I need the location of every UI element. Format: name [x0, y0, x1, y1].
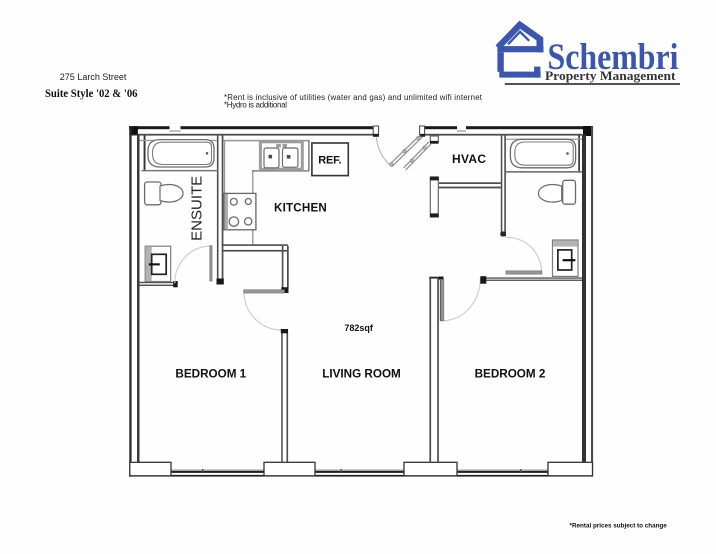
svg-text:*Hydro is additional: *Hydro is additional — [224, 101, 287, 110]
svg-text:BEDROOM 2: BEDROOM 2 — [475, 367, 546, 380]
svg-text:BEDROOM 1: BEDROOM 1 — [175, 367, 246, 380]
svg-text:275 Larch Street: 275 Larch Street — [60, 72, 127, 82]
svg-text:Property Management: Property Management — [545, 69, 676, 83]
svg-text:LIVING ROOM: LIVING ROOM — [322, 367, 401, 380]
svg-text:Suite Style '02 & '06: Suite Style '02 & '06 — [45, 86, 138, 100]
svg-text:KITCHEN: KITCHEN — [274, 201, 327, 214]
svg-text:REF.: REF. — [318, 154, 341, 166]
svg-text:*Rental prices subject to chan: *Rental prices subject to change — [570, 522, 668, 529]
svg-text:ENSUITE: ENSUITE — [189, 176, 206, 241]
svg-text:782sqf: 782sqf — [344, 323, 374, 333]
svg-text:HVAC: HVAC — [452, 152, 486, 166]
